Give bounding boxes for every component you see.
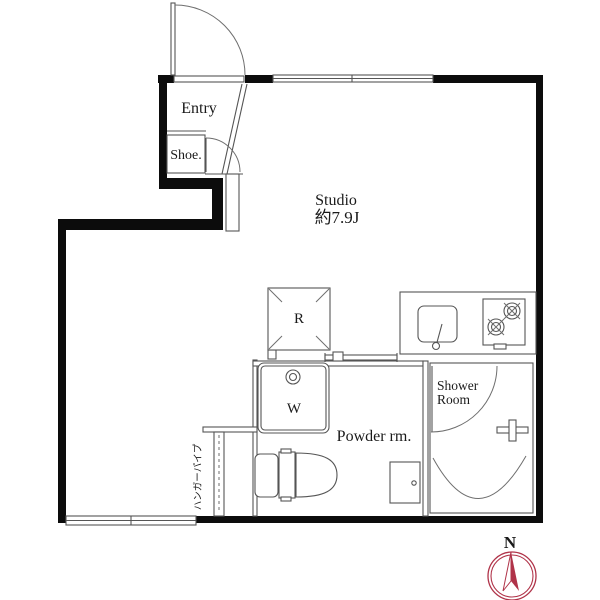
floorplan-canvas: Entry Shoe. Studio 約7.9J R W Powder rm. …	[0, 0, 600, 600]
window-top	[273, 75, 433, 82]
compass-north-label: N	[504, 533, 517, 552]
wall-entry-left	[159, 75, 167, 183]
hanger-shelf	[203, 427, 257, 432]
wall-left	[58, 219, 66, 523]
entry-door	[171, 3, 245, 82]
shoe-door-swing-arc	[206, 138, 240, 172]
wall-top-right-segment	[433, 75, 543, 83]
door-pocket-post-right	[333, 352, 343, 361]
access-panel	[390, 462, 420, 503]
label-studio-size: 約7.9J	[315, 208, 360, 227]
wall-right	[536, 75, 543, 523]
compass: N	[488, 533, 536, 600]
label-studio-name: Studio	[315, 192, 357, 209]
kitchen-sink	[418, 306, 457, 342]
label-refrigerator: R	[294, 311, 304, 327]
window-bottom	[66, 516, 196, 525]
label-powder-room: Powder rm.	[337, 428, 412, 445]
entry-door-threshold	[174, 76, 244, 82]
toilet	[255, 449, 337, 501]
washer-pan	[258, 363, 329, 433]
toilet-seat-hinge	[279, 452, 295, 498]
toilet-tab-top	[281, 449, 291, 453]
hanger-pipe	[203, 427, 257, 516]
handle-bar-vertical	[509, 420, 516, 441]
toilet-tab-bottom	[281, 497, 291, 501]
toilet-bowl	[296, 453, 337, 497]
compass-needle-right	[511, 552, 519, 591]
label-hanger-pipe: ハンガーパイプ	[193, 443, 204, 510]
entry-partition-diagonal	[222, 84, 247, 174]
floorplan-drawing: Entry Shoe. Studio 約7.9J R W Powder rm. …	[0, 0, 600, 600]
label-washer: W	[287, 401, 302, 417]
pipe-space-box	[226, 174, 239, 231]
label-entry: Entry	[181, 100, 217, 117]
entry-door-swing-arc	[175, 5, 245, 75]
wall-top-mid-segment	[245, 75, 273, 83]
partition-line-2	[227, 84, 247, 174]
toilet-tank	[255, 454, 278, 497]
access-panel-door	[390, 462, 420, 503]
compass-needle-left	[503, 552, 511, 591]
label-shower-line2: Room	[437, 392, 471, 407]
label-shoe: Shoe.	[170, 148, 202, 163]
door-pocket-post-left	[268, 350, 276, 359]
powder-sliding-door	[268, 350, 397, 362]
wall-bottom	[196, 516, 543, 523]
entry-door-leaf	[171, 3, 175, 75]
partition-line-1	[222, 84, 242, 174]
label-shower-line1: Shower	[437, 378, 479, 393]
powder-wall-right	[423, 361, 428, 516]
kitchen-counter	[400, 292, 536, 354]
kitchen-faucet-base	[433, 343, 440, 350]
stove-tab	[494, 344, 506, 349]
wall-step-horizontal-lower	[58, 219, 223, 230]
